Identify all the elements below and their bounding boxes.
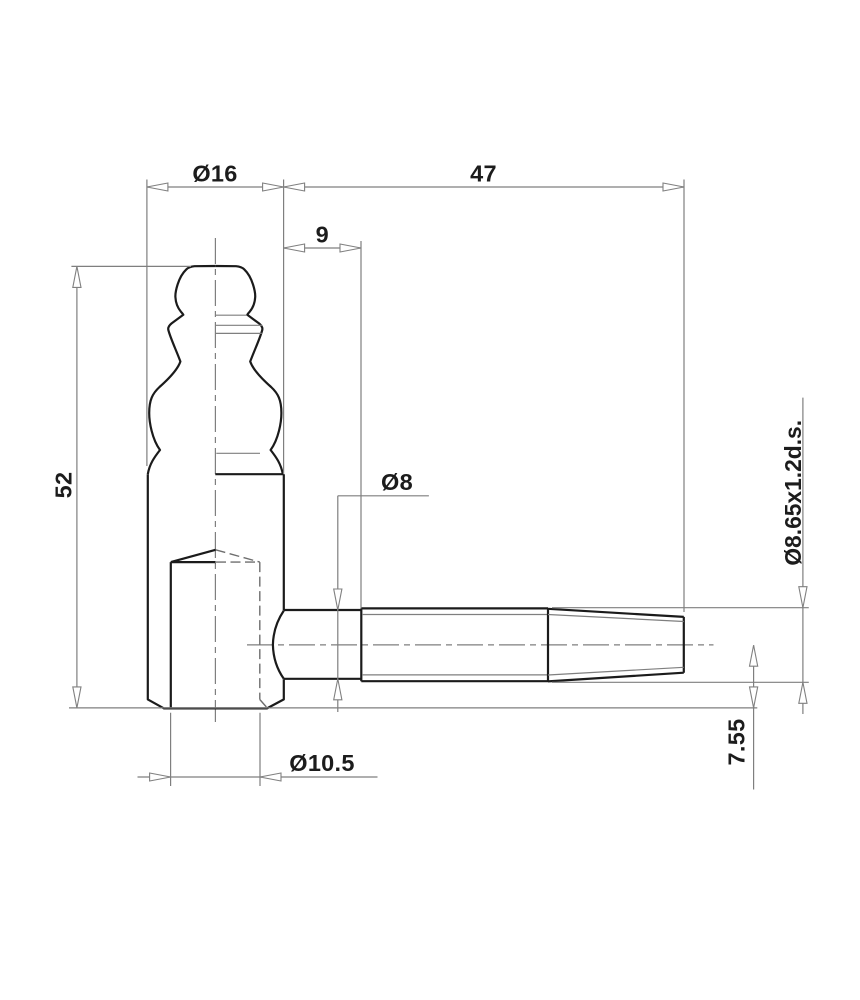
svg-text:Ø16: Ø16 <box>192 160 237 186</box>
svg-text:Ø10.5: Ø10.5 <box>289 750 355 776</box>
svg-text:7.55: 7.55 <box>724 719 750 766</box>
svg-text:Ø8.65x1.2d.s.: Ø8.65x1.2d.s. <box>780 420 806 566</box>
svg-text:52: 52 <box>51 472 77 499</box>
svg-text:9: 9 <box>316 222 329 248</box>
svg-text:Ø8: Ø8 <box>381 469 413 495</box>
svg-text:47: 47 <box>470 160 497 186</box>
